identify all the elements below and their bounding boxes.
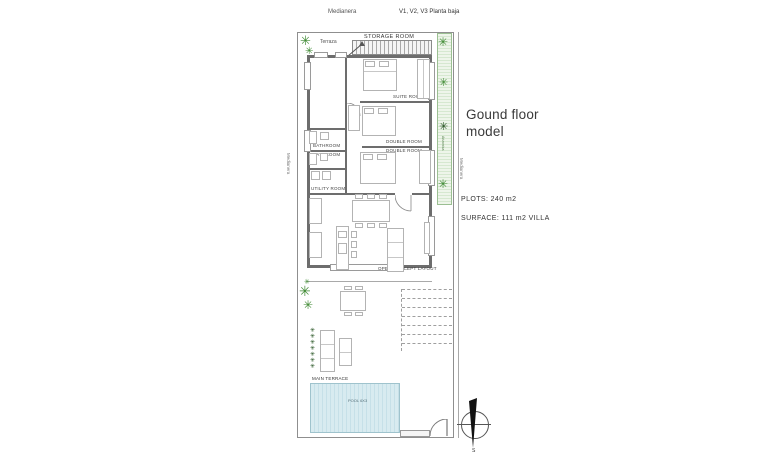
utility-appliance (311, 171, 320, 180)
wall-segment (412, 193, 432, 195)
kitchen-counter (309, 232, 322, 258)
floor-plan-page: Medianera V1, V2, V3 Planta baja Mediane… (0, 0, 770, 460)
left-boundary-label: Medianera (286, 153, 291, 174)
page-title: Gound floor model (466, 106, 539, 140)
double-room-label: DOUBLE ROOM (386, 139, 422, 144)
gate-step (400, 430, 430, 437)
pergola-line (402, 325, 452, 326)
bathroom-label: BATHROOM (313, 143, 340, 148)
dining-table (352, 200, 390, 222)
top-terrace-label: Terraza (320, 39, 337, 45)
chair (367, 194, 375, 199)
pergola-line (402, 307, 452, 308)
neighbor-boundary-line (458, 32, 459, 438)
hob (338, 243, 347, 254)
window (335, 52, 347, 58)
plant-icon: ✳ (303, 299, 313, 311)
chair (367, 223, 375, 228)
kitchen-counter (309, 198, 322, 224)
closet (348, 105, 360, 131)
pillow (365, 61, 375, 67)
pergola-line (402, 316, 452, 317)
sofa (387, 228, 404, 272)
bath-fixture (320, 132, 329, 140)
chair (355, 286, 363, 290)
wall-segment (309, 128, 345, 130)
chair (379, 223, 387, 228)
stool (351, 251, 357, 258)
pillow (363, 154, 373, 160)
top-boundary-label: Medianera (328, 9, 356, 15)
plant-icon: ✳ (439, 122, 448, 133)
pool-label: POOL 6X3 (348, 398, 367, 403)
pergola-line (402, 334, 452, 335)
chair (355, 312, 363, 316)
compass-south-label: S (472, 448, 475, 454)
wall-segment (309, 168, 345, 170)
pergola-line (402, 289, 452, 290)
pergola-line (402, 298, 452, 299)
lounger-line (340, 352, 351, 353)
sink (338, 231, 347, 238)
wall-segment (360, 101, 430, 103)
bath-fixture (320, 153, 328, 161)
surface-info: SURFACE: 111 m2 VILLA (461, 215, 550, 222)
pillow (379, 61, 389, 67)
right-boundary-label: Medianera (459, 158, 464, 179)
plant-icon: ✳ (438, 178, 448, 190)
pillow (377, 154, 387, 160)
chair (344, 286, 352, 290)
pergola-area (401, 289, 452, 351)
porch-step-line (307, 281, 432, 282)
pillow (364, 108, 374, 114)
window (314, 52, 328, 58)
plan-version-label: V1, V2, V3 Planta baja (399, 9, 459, 15)
bed-line (364, 71, 396, 72)
chair (379, 194, 387, 199)
pergola-line (402, 343, 452, 344)
plant-icon: ✳ (310, 364, 315, 370)
lounger-line (321, 358, 334, 359)
sofa-line (388, 257, 403, 258)
bath-fixture (309, 131, 317, 144)
closet (419, 150, 431, 184)
compass-needle-icon (469, 398, 478, 448)
sun-lounger (320, 330, 335, 372)
stool (351, 241, 357, 248)
tv-unit (424, 222, 430, 254)
main-terrace-label: MAIN TERRACE (312, 376, 348, 381)
plant-icon: ✳ (438, 36, 448, 48)
chair (355, 223, 363, 228)
plots-info: PLOTS: 240 m2 (461, 196, 516, 203)
pool (310, 383, 400, 433)
wall-segment (345, 58, 347, 193)
plant-icon: ✳ (299, 284, 311, 298)
bath-fixture (309, 153, 317, 165)
window (304, 62, 311, 90)
stool (351, 231, 357, 238)
chair (355, 194, 363, 199)
plant-icon: ✳ (439, 78, 448, 89)
outdoor-table (340, 291, 366, 311)
pillow (378, 108, 388, 114)
chair (344, 312, 352, 316)
sofa-line (388, 242, 403, 243)
gate-door-arc (430, 419, 449, 438)
storage-room-label: STORAGE ROOM (364, 34, 414, 40)
closet-rail (423, 60, 424, 98)
lounger-line (321, 344, 334, 345)
hedge-species-label: Arizonica (441, 136, 445, 150)
utility-appliance (322, 171, 331, 180)
utility-room-label: UTILITY ROOM (311, 186, 345, 191)
door-arc (395, 195, 412, 212)
